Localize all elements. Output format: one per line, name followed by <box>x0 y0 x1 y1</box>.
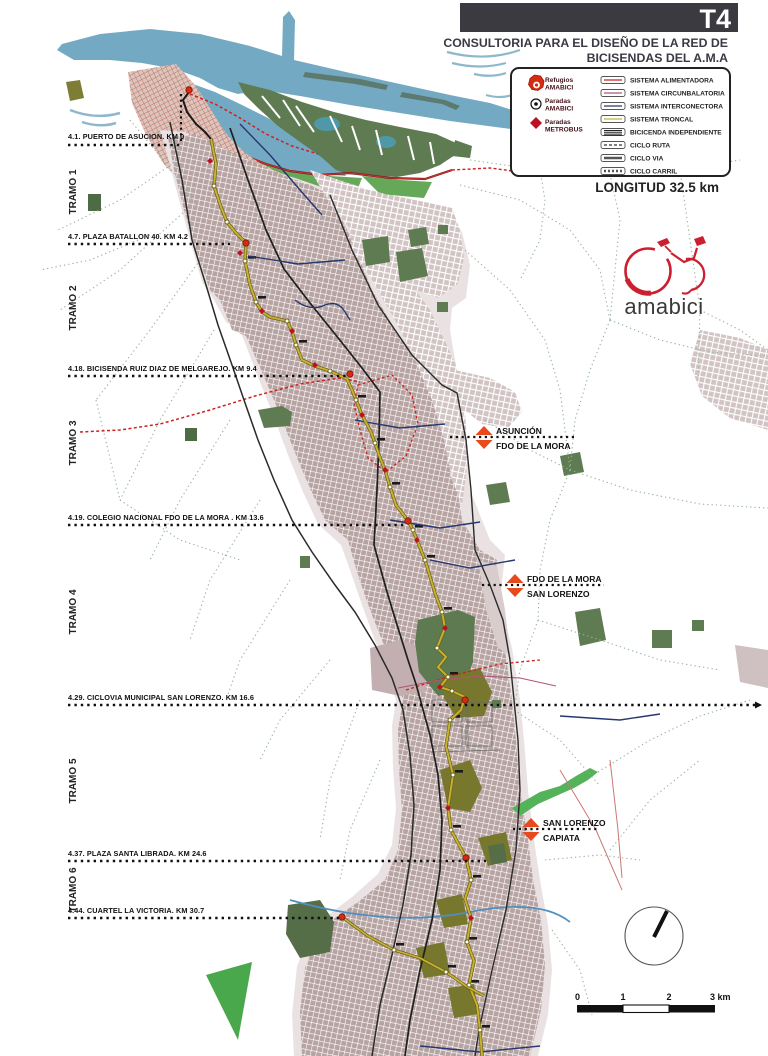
svg-text:4.19. COLEGIO NACIONAL FDO DE: 4.19. COLEGIO NACIONAL FDO DE LA MORA . … <box>68 513 264 522</box>
svg-text:METROBUS: METROBUS <box>545 127 583 134</box>
svg-text:TRAMO 5: TRAMO 5 <box>68 758 79 803</box>
svg-text:Paradas: Paradas <box>545 98 571 105</box>
svg-text:0: 0 <box>575 992 580 1002</box>
svg-text:2: 2 <box>666 992 671 1002</box>
svg-text:TRAMO 6: TRAMO 6 <box>68 867 79 912</box>
svg-text:4.18. BICISENDA RUIZ DIAZ DE M: 4.18. BICISENDA RUIZ DIAZ DE MELGAREJO. … <box>68 364 258 373</box>
svg-text:T4: T4 <box>699 4 731 34</box>
svg-text:SISTEMA TRONCAL: SISTEMA TRONCAL <box>630 117 693 124</box>
svg-text:4.1. PUERTO DE ASUCION. KM 0: 4.1. PUERTO DE ASUCION. KM 0 <box>68 132 184 141</box>
svg-text:TRAMO 1: TRAMO 1 <box>68 169 79 214</box>
svg-text:AMABICI: AMABICI <box>545 106 573 113</box>
svg-text:AMABICI: AMABICI <box>545 85 573 92</box>
svg-text:Paradas: Paradas <box>545 119 571 126</box>
svg-text:BICISENDAS DEL A.M.A: BICISENDAS DEL A.M.A <box>587 51 729 65</box>
svg-text:TRAMO 3: TRAMO 3 <box>68 420 79 465</box>
svg-text:amabici: amabici <box>624 294 703 319</box>
svg-text:1: 1 <box>620 992 625 1002</box>
svg-text:SISTEMA INTERCONECTORA: SISTEMA INTERCONECTORA <box>630 104 723 111</box>
svg-text:FDO DE LA MORA: FDO DE LA MORA <box>527 574 602 584</box>
svg-text:SAN LORENZO: SAN LORENZO <box>543 818 606 828</box>
svg-text:BICICENDA INDEPENDIENTE: BICICENDA INDEPENDIENTE <box>630 130 722 137</box>
svg-text:LONGITUD 32.5 km: LONGITUD 32.5 km <box>595 180 719 195</box>
svg-text:TRAMO 4: TRAMO 4 <box>68 589 79 634</box>
svg-text:FDO DE LA MORA: FDO DE LA MORA <box>496 441 571 451</box>
svg-text:CAPIATA: CAPIATA <box>543 833 580 843</box>
svg-text:TRAMO 2: TRAMO 2 <box>68 285 79 330</box>
svg-text:4.44. CUARTEL LA VICTORIA. KM: 4.44. CUARTEL LA VICTORIA. KM 30.7 <box>68 906 204 915</box>
svg-text:CICLO VIA: CICLO VIA <box>630 156 664 163</box>
svg-text:4.7. PLAZA BATALLON 40. KM 4.2: 4.7. PLAZA BATALLON 40. KM 4.2 <box>68 232 188 241</box>
svg-text:CICLO CARRIL: CICLO CARRIL <box>630 169 677 176</box>
svg-text:Refugios: Refugios <box>545 77 574 84</box>
svg-text:4.29. CICLOVIA MUNICIPAL SAN L: 4.29. CICLOVIA MUNICIPAL SAN LORENZO. KM… <box>68 693 254 702</box>
svg-text:CICLO RUTA: CICLO RUTA <box>630 143 670 150</box>
svg-text:4.37. PLAZA SANTA LIBRADA. KM: 4.37. PLAZA SANTA LIBRADA. KM 24.6 <box>68 849 207 858</box>
svg-text:3 km: 3 km <box>710 992 731 1002</box>
svg-text:SISTEMA ALIMENTADORA: SISTEMA ALIMENTADORA <box>630 78 714 85</box>
svg-text:SAN LORENZO: SAN LORENZO <box>527 589 590 599</box>
svg-text:ASUNCIÓN: ASUNCIÓN <box>496 425 542 436</box>
svg-text:SISTEMA CIRCUNBALATORIA: SISTEMA CIRCUNBALATORIA <box>630 91 725 98</box>
svg-text:CONSULTORIA PARA EL DISEÑO DE: CONSULTORIA PARA EL DISEÑO DE LA RED DE <box>443 35 728 50</box>
